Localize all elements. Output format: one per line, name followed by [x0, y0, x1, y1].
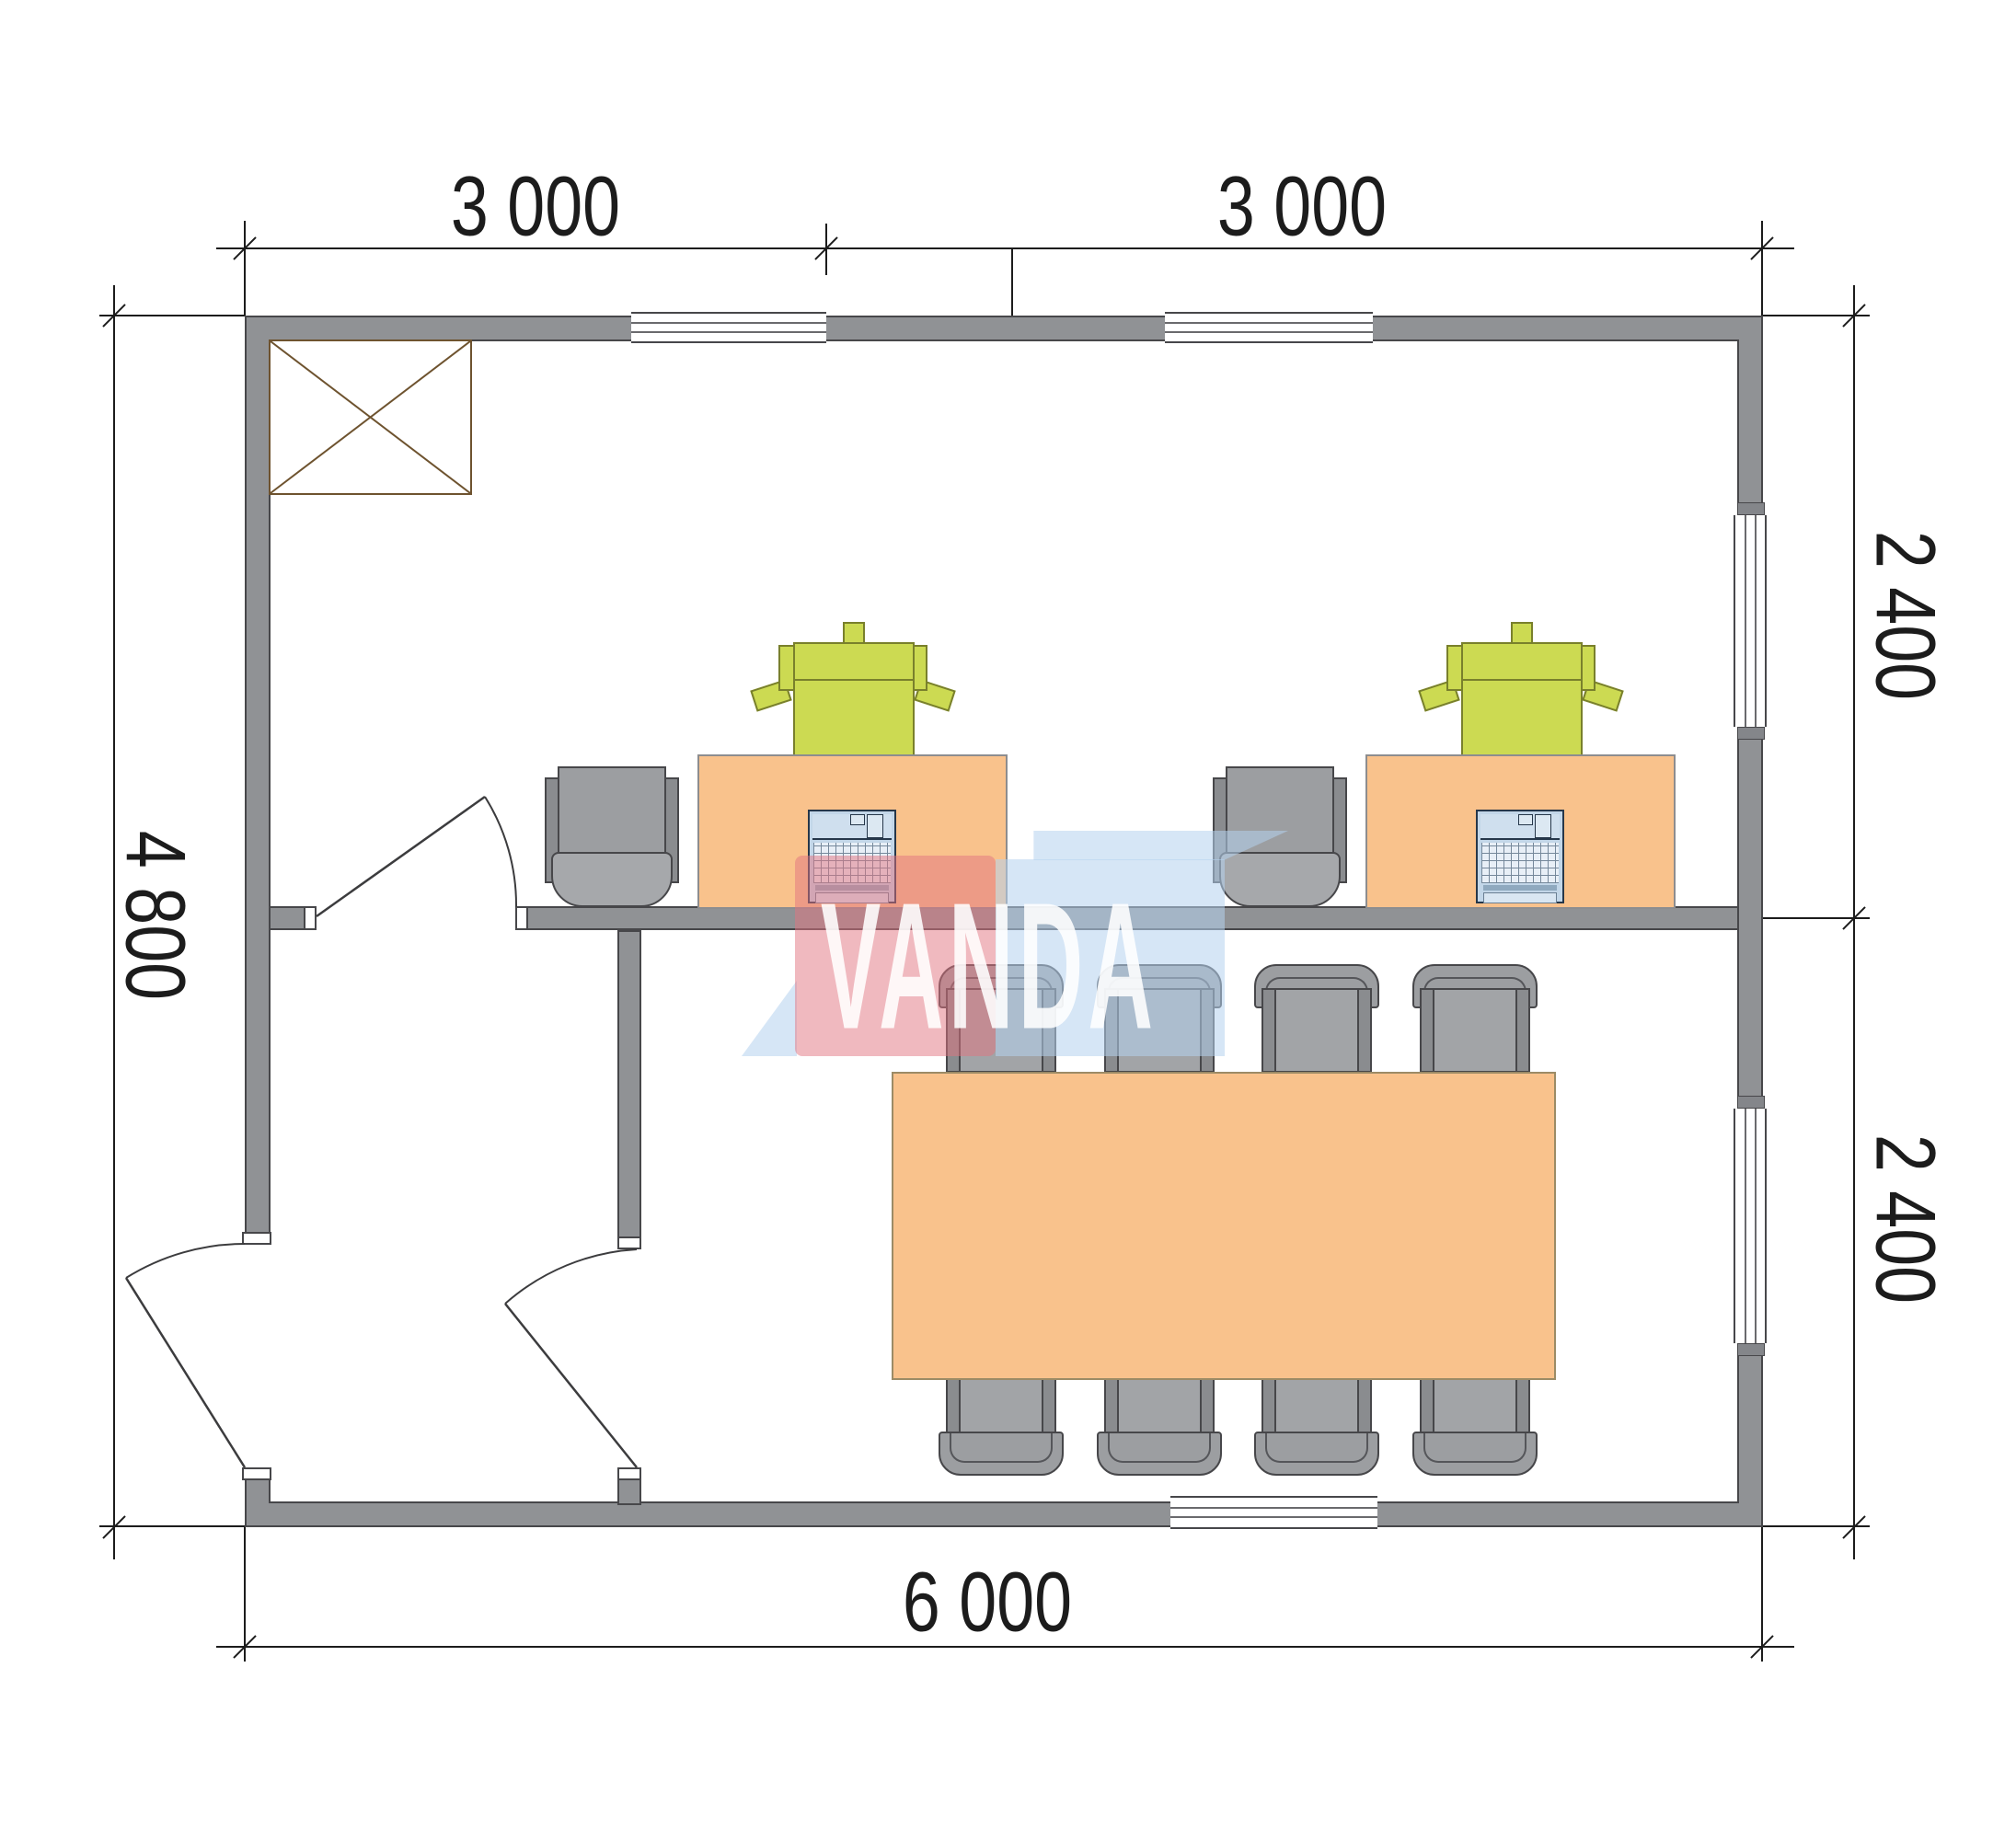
office-chair-seat	[551, 852, 673, 907]
conference-table	[892, 1072, 1556, 1380]
cabinet	[269, 339, 472, 495]
conference-chair-back-line	[950, 1433, 1053, 1463]
conference-chair-back-line	[1108, 1433, 1211, 1463]
laptop-front-tray	[1483, 892, 1557, 903]
laptop-hinge-bar	[815, 885, 889, 891]
conference-chair-back	[1254, 1432, 1379, 1476]
printer-lid-line	[1463, 679, 1581, 681]
door-swing-arc	[126, 1244, 245, 1278]
conference-chair-armrest	[1261, 988, 1276, 1073]
laptop-left	[808, 810, 896, 903]
laptop-detail	[850, 814, 865, 825]
conference-chair-armrest	[946, 988, 961, 1073]
conference-chair-armrest	[1104, 988, 1119, 1073]
laptop-front-tray	[815, 892, 889, 903]
door-swing-arc	[505, 1249, 637, 1304]
conference-chair-armrest	[1420, 988, 1434, 1073]
laptop-keyboard	[813, 843, 891, 883]
conference-chair-back-line	[1423, 1433, 1526, 1463]
conference-chair-armrest	[1515, 988, 1530, 1073]
laptop-detail	[1535, 814, 1551, 838]
conference-chair-back-line	[1265, 1433, 1368, 1463]
floor-plan: 3 000 3 000 2 400 2 400 4 800 6 000	[0, 0, 2016, 1840]
printer-body	[1461, 642, 1583, 758]
printer-body	[793, 642, 915, 758]
door-leaf	[126, 1278, 245, 1467]
laptop-detail	[867, 814, 883, 838]
laptop-detail	[1518, 814, 1533, 825]
conference-chair-back	[939, 1432, 1064, 1476]
conference-chair-back	[1097, 1432, 1222, 1476]
laptop-hinge-bar	[1483, 885, 1557, 891]
laptop-keyboard	[1481, 843, 1559, 883]
door-swing-arc	[485, 797, 516, 907]
conference-chair-body	[1261, 988, 1372, 1073]
conference-chair-armrest	[1200, 988, 1215, 1073]
conference-chair-body	[946, 988, 1056, 1073]
conference-chair-armrest	[1042, 988, 1056, 1073]
door-symbols-layer	[0, 0, 2016, 1840]
printer-lid-line	[795, 679, 913, 681]
office-chair-seat	[1219, 852, 1341, 907]
conference-chair-body	[1420, 988, 1530, 1073]
door-leaf	[505, 1304, 637, 1467]
laptop-right	[1476, 810, 1564, 903]
door-leaf	[317, 797, 485, 916]
conference-chair-armrest	[1357, 988, 1372, 1073]
conference-chair-back	[1412, 1432, 1538, 1476]
conference-chair-body	[1104, 988, 1215, 1073]
